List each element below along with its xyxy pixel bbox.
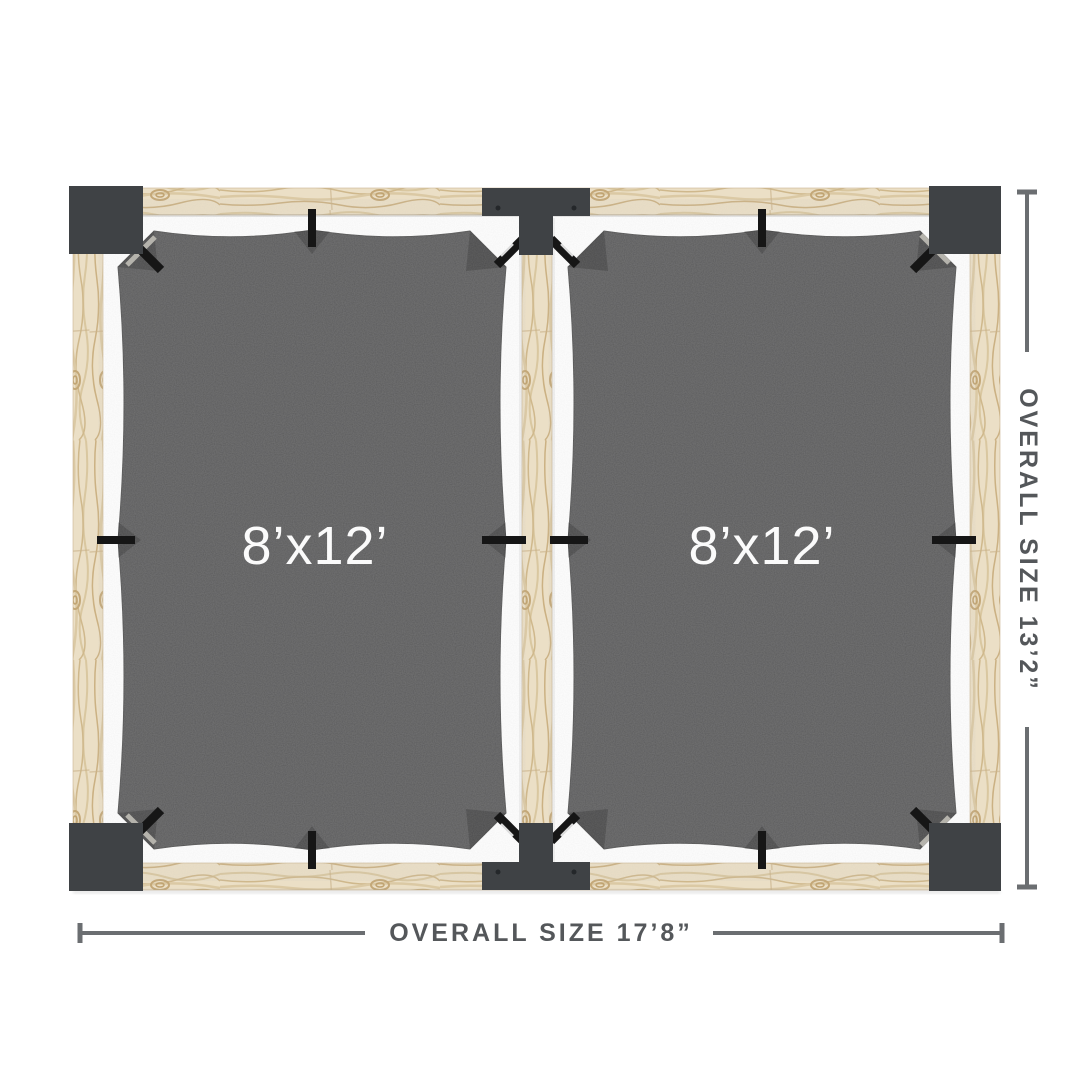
t-bracket-top-center bbox=[482, 188, 590, 255]
dimension-height: OVERALL SIZE 13’2” bbox=[1014, 192, 1042, 887]
corner-bracket-bottom-left bbox=[69, 823, 143, 891]
corner-bracket-bottom-right bbox=[929, 823, 1001, 891]
corner-bracket-top-left bbox=[69, 186, 143, 254]
corner-bracket-top-right bbox=[929, 186, 1001, 254]
panel-label-right: 8’x12’ bbox=[688, 516, 835, 576]
t-bracket-bottom-center bbox=[482, 823, 590, 890]
dimension-height-label: OVERALL SIZE 13’2” bbox=[1014, 388, 1042, 692]
dimension-width: OVERALL SIZE 17’8” bbox=[80, 919, 1002, 947]
dimension-width-label: OVERALL SIZE 17’8” bbox=[389, 919, 693, 947]
pergola-diagram-page: 8’x12’ 8’x12’ OVERALL SIZE 17’8” OVERALL… bbox=[0, 0, 1080, 1080]
pergola-top-view: 8’x12’ 8’x12’ OVERALL SIZE 17’8” OVERALL… bbox=[0, 0, 1080, 1080]
beam-center bbox=[522, 215, 552, 863]
panel-label-left: 8’x12’ bbox=[241, 516, 388, 576]
